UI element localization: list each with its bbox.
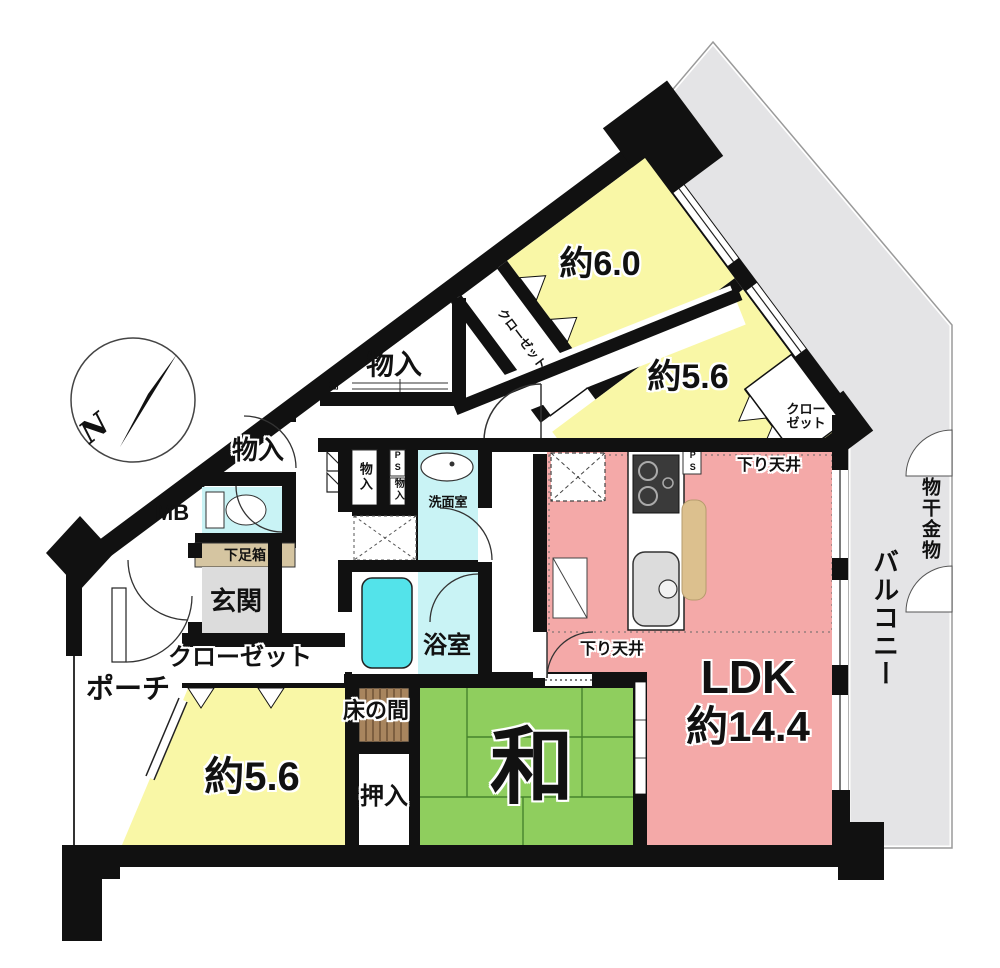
ps-hall-label: PS [392,450,401,474]
monoiri-small-label: 物入 [392,478,403,502]
closet-56-label-line2: ゼット [786,417,825,431]
shoe-box-label: 下足箱 [224,548,266,562]
ps-kitchen-label: PS [687,450,696,474]
wall [452,298,466,406]
wall [478,440,492,508]
room-label-ldk-size: 約14.4 [686,706,810,748]
toilet-tank-icon [206,492,224,528]
room-label-porch: ポーチ [86,675,170,703]
closet-56-label-line1: クロー [786,403,825,417]
dropped-ceiling-lower-label: 下り天井 [580,642,644,658]
dropped-ceiling-upper-label: 下り天井 [737,458,801,474]
wall [533,454,547,632]
fusuma-door [635,682,646,794]
wall [268,540,282,633]
wall [62,877,102,941]
tokonoma-label: 床の間 [343,700,409,722]
wall [118,845,860,867]
bathtub-icon [362,578,412,668]
balcony-label: バルコニー [870,548,897,688]
wall [338,560,478,572]
stove-icon [633,455,679,513]
monoiri-triangle-label: 物入 [366,351,422,379]
room-label-japanese-room: 和 [490,725,574,809]
oshiire-label: 押入 [360,785,408,809]
mb-label: MB [155,502,189,524]
wall [344,674,478,688]
wall [478,562,492,688]
room-label-bedroom-right: 約5.6 [647,360,728,394]
wall [409,688,420,845]
floorplan-drawing [0,0,1000,968]
washbasin-icon [421,453,473,481]
monoiri-hall-label: 物入 [232,437,284,463]
room-label-ldk: LDK [701,654,796,700]
monoiri-vertical-label: 物入 [358,462,372,492]
wall [320,392,466,406]
floorplan-page: N 約6.0 約5.6 約5.6 LDK 約14.4 和 浴室 洗面室 玄関 ポ… [0,0,1000,968]
wall [62,845,120,879]
room-label-washroom: 洗面室 [428,496,467,509]
wall [66,556,82,656]
room-label-bathroom: 浴室 [423,634,471,658]
wall [282,406,296,422]
room-label-bedroom-bottom: 約5.6 [204,757,300,797]
closet-56-label: クロー ゼット [786,403,825,432]
wall [195,472,296,486]
counter-table [682,500,706,600]
door-arc [128,560,188,620]
room-label-bedroom-top: 約6.0 [559,247,640,281]
shelf-label: 棚 [329,382,338,391]
room-label-entrance: 玄関 [210,588,262,614]
closet-hall-label: クローゼット [168,646,312,670]
toilet-icon [226,495,266,525]
wall [338,450,352,512]
laundry-hardware-label: 物干金物 [919,477,939,561]
door-leaf [112,588,126,662]
